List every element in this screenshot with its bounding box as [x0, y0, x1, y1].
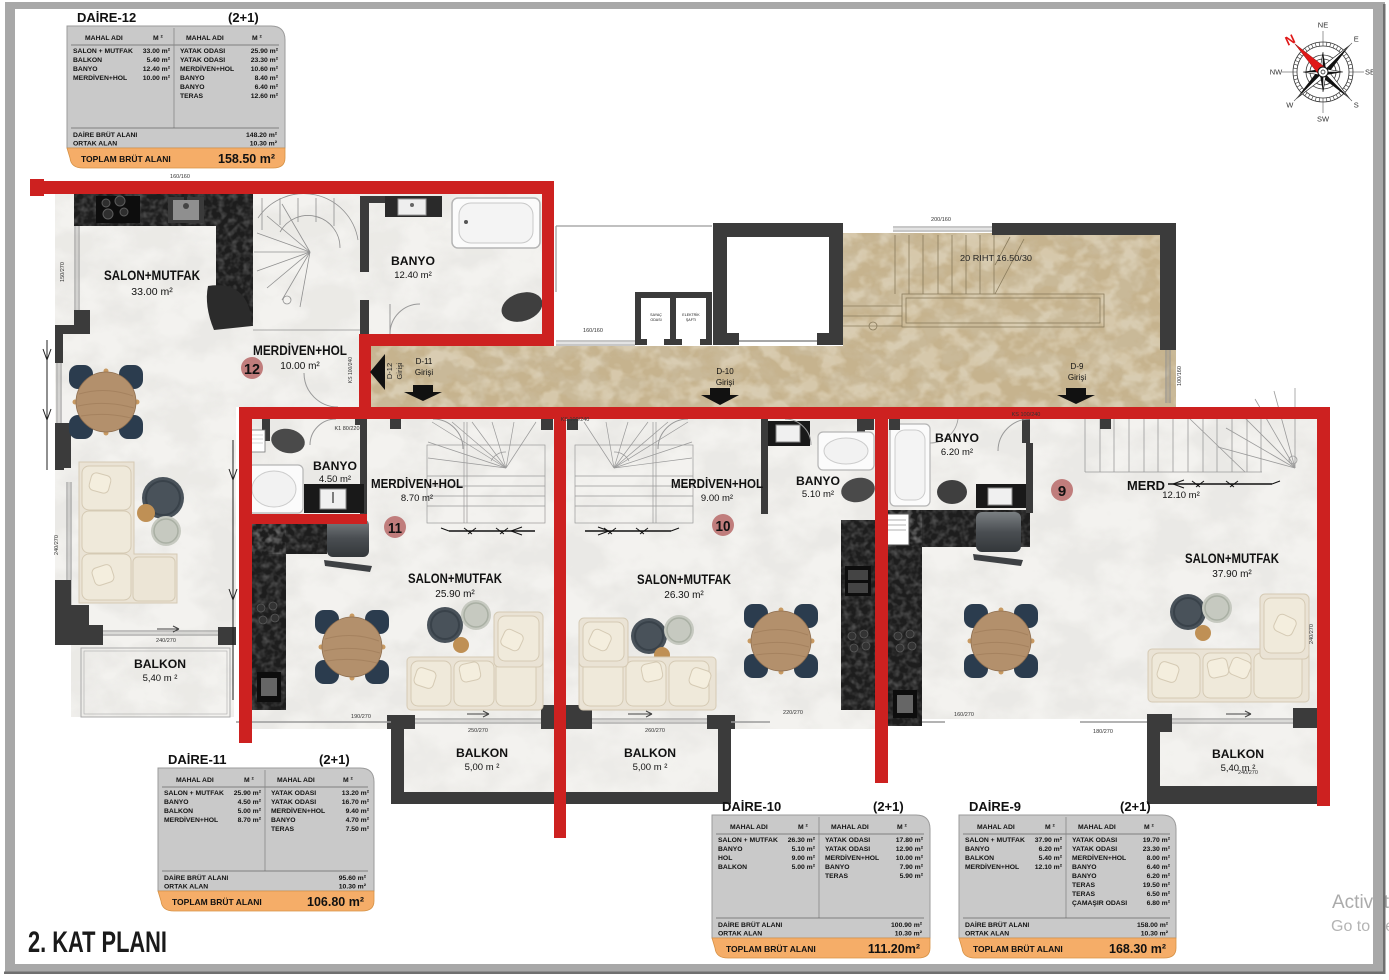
- svg-text:YATAK ODASI: YATAK ODASI: [1072, 837, 1117, 844]
- svg-text:33.00 m²: 33.00 m²: [131, 286, 173, 298]
- svg-text:250/270: 250/270: [468, 728, 488, 734]
- svg-text:8.70 m²: 8.70 m²: [238, 817, 262, 824]
- svg-text:MERDİVEN+HOL: MERDİVEN+HOL: [180, 65, 234, 73]
- svg-text:TERAS: TERAS: [1072, 891, 1096, 898]
- svg-text:S: S: [1354, 101, 1359, 110]
- svg-text:11: 11: [388, 520, 402, 537]
- svg-text:TOPLAM BRÜT ALANI: TOPLAM BRÜT ALANI: [81, 154, 171, 164]
- svg-text:12: 12: [244, 361, 260, 378]
- svg-text:(2+1): (2+1): [319, 752, 350, 767]
- svg-text:BALKON: BALKON: [624, 746, 676, 760]
- svg-text:DAİRE BRÜT ALANI: DAİRE BRÜT ALANI: [718, 920, 782, 929]
- svg-text:BALKON: BALKON: [164, 808, 193, 815]
- svg-text:BALKON: BALKON: [965, 855, 994, 862]
- svg-text:240/270: 240/270: [156, 638, 176, 644]
- svg-text:10.30 m²: 10.30 m²: [1141, 931, 1169, 938]
- svg-text:200/160: 200/160: [931, 217, 951, 223]
- svg-text:DAİRE BRÜT ALANI: DAİRE BRÜT ALANI: [164, 873, 228, 882]
- svg-text:BALKON: BALKON: [456, 746, 508, 760]
- svg-text:MAHAL ADI: MAHAL ADI: [977, 824, 1015, 831]
- svg-text:DAİRE-10: DAİRE-10: [722, 799, 781, 814]
- svg-text:BANYO: BANYO: [1072, 864, 1097, 871]
- svg-text:BANYO: BANYO: [271, 817, 296, 824]
- svg-text:Girişi: Girişi: [415, 368, 433, 377]
- svg-text:25.90 m²: 25.90 m²: [251, 48, 279, 55]
- svg-text:MERDİVEN+HOL: MERDİVEN+HOL: [164, 816, 218, 824]
- svg-text:M ²: M ²: [244, 777, 255, 784]
- svg-text:240/270: 240/270: [54, 535, 60, 555]
- svg-text:TERAS: TERAS: [271, 826, 295, 833]
- svg-text:ORTAK ALAN: ORTAK ALAN: [718, 931, 762, 938]
- svg-text:8.40 m²: 8.40 m²: [255, 75, 279, 82]
- svg-text:6.40 m²: 6.40 m²: [1147, 864, 1171, 871]
- svg-text:5.40 m²: 5.40 m²: [1039, 855, 1063, 862]
- svg-text:260/270: 260/270: [645, 728, 665, 734]
- svg-text:BALKON: BALKON: [134, 657, 186, 671]
- svg-text:MAHAL ADI: MAHAL ADI: [730, 824, 768, 831]
- svg-text:SALON + MUTFAK: SALON + MUTFAK: [718, 837, 778, 844]
- svg-text:SALON+MUTFAK: SALON+MUTFAK: [408, 571, 502, 586]
- svg-text:5.00 m²: 5.00 m²: [792, 864, 816, 871]
- svg-text:M ²: M ²: [798, 824, 809, 831]
- svg-text:M ²: M ²: [252, 35, 263, 42]
- svg-text:33.00 m²: 33.00 m²: [143, 48, 171, 55]
- svg-text:MAHAL ADI: MAHAL ADI: [176, 777, 214, 784]
- svg-text:158.00 m²: 158.00 m²: [1137, 922, 1169, 929]
- svg-text:4.50 m²: 4.50 m²: [238, 799, 262, 806]
- svg-text:MERDİVEN+HOL: MERDİVEN+HOL: [271, 807, 325, 815]
- svg-text:23.30 m²: 23.30 m²: [1143, 846, 1171, 853]
- svg-text:BANYO: BANYO: [825, 864, 850, 871]
- svg-text:19.70 m²: 19.70 m²: [1143, 837, 1171, 844]
- svg-text:10.60 m²: 10.60 m²: [251, 66, 279, 73]
- svg-text:YATAK ODASI: YATAK ODASI: [271, 790, 316, 797]
- svg-text:6.20 m²: 6.20 m²: [1147, 873, 1171, 880]
- svg-text:12.10 m²: 12.10 m²: [1162, 490, 1200, 501]
- svg-text:MERDİVEN+HOL: MERDİVEN+HOL: [965, 863, 1019, 871]
- svg-text:BANYO: BANYO: [391, 254, 435, 268]
- svg-text:150/270: 150/270: [60, 262, 66, 282]
- svg-text:ORTAK ALAN: ORTAK ALAN: [965, 931, 1009, 938]
- svg-text:10.00 m²: 10.00 m²: [896, 855, 924, 862]
- svg-text:DAİRE-9: DAİRE-9: [969, 799, 1021, 814]
- svg-text:Girişi: Girişi: [1068, 373, 1086, 382]
- svg-text:SALON + MUTFAK: SALON + MUTFAK: [965, 837, 1025, 844]
- svg-text:MERD: MERD: [1127, 478, 1165, 493]
- svg-text:MAHAL ADI: MAHAL ADI: [277, 777, 315, 784]
- svg-text:KS 100/240: KS 100/240: [561, 417, 590, 423]
- svg-text:10.30 m²: 10.30 m²: [250, 141, 278, 148]
- svg-text:ORTAK ALAN: ORTAK ALAN: [164, 884, 208, 891]
- svg-text:MAHAL ADI: MAHAL ADI: [1078, 824, 1116, 831]
- svg-text:6.50 m²: 6.50 m²: [1147, 891, 1171, 898]
- svg-text:MERDİVEN+HOL: MERDİVEN+HOL: [1072, 854, 1126, 862]
- svg-text:TOPLAM BRÜT ALANI: TOPLAM BRÜT ALANI: [726, 944, 816, 954]
- svg-text:12.90 m²: 12.90 m²: [896, 846, 924, 853]
- svg-text:(2+1): (2+1): [228, 10, 259, 25]
- svg-text:DAİRE-12: DAİRE-12: [77, 10, 136, 25]
- svg-text:ŞAFTI: ŞAFTI: [686, 318, 696, 322]
- svg-text:BANYO: BANYO: [965, 846, 990, 853]
- svg-text:7.90 m²: 7.90 m²: [900, 864, 924, 871]
- svg-text:5,00 m ²: 5,00 m ²: [633, 762, 668, 773]
- svg-text:N: N: [1283, 31, 1298, 49]
- svg-text:YATAK ODASI: YATAK ODASI: [825, 837, 870, 844]
- svg-text:BANYO: BANYO: [718, 846, 743, 853]
- svg-text:9: 9: [1058, 483, 1066, 500]
- svg-text:240/270: 240/270: [1238, 770, 1258, 776]
- svg-text:9.00 m²: 9.00 m²: [701, 493, 733, 504]
- svg-text:10.30 m²: 10.30 m²: [895, 931, 923, 938]
- svg-text:D-11: D-11: [416, 357, 433, 366]
- svg-text:106.80 m²: 106.80 m²: [307, 895, 364, 909]
- svg-text:SW: SW: [1317, 115, 1330, 124]
- svg-text:95.60 m²: 95.60 m²: [339, 875, 367, 882]
- svg-text:BANYO: BANYO: [73, 66, 98, 73]
- svg-text:37.90 m²: 37.90 m²: [1212, 569, 1252, 580]
- svg-text:TERAS: TERAS: [180, 93, 204, 100]
- svg-text:MERDİVEN+HOL: MERDİVEN+HOL: [825, 854, 879, 862]
- svg-text:148.20 m²: 148.20 m²: [246, 132, 278, 139]
- svg-text:BANYO: BANYO: [180, 84, 205, 91]
- svg-text:D-10: D-10: [716, 367, 734, 376]
- svg-text:13.20 m²: 13.20 m²: [342, 790, 370, 797]
- svg-text:240/270: 240/270: [1309, 624, 1315, 644]
- svg-text:M ²: M ²: [1045, 824, 1056, 831]
- svg-text:BALKON: BALKON: [73, 57, 102, 64]
- svg-text:KS 100/240: KS 100/240: [1012, 412, 1041, 418]
- svg-text:YATAK ODASI: YATAK ODASI: [180, 48, 225, 55]
- svg-text:7.50 m²: 7.50 m²: [346, 826, 370, 833]
- svg-text:12.40 m²: 12.40 m²: [394, 270, 432, 281]
- svg-text:ÇAMAŞIR ODASI: ÇAMAŞIR ODASI: [1072, 900, 1127, 907]
- svg-text:10.00 m²: 10.00 m²: [280, 361, 320, 372]
- svg-text:5,40 m ²: 5,40 m ²: [143, 673, 178, 684]
- svg-text:12.10 m²: 12.10 m²: [1035, 864, 1063, 871]
- svg-text:6.80 m²: 6.80 m²: [1147, 900, 1171, 907]
- svg-text:MAHAL ADI: MAHAL ADI: [186, 35, 224, 42]
- svg-text:5.10 m²: 5.10 m²: [792, 846, 816, 853]
- svg-text:SALON+MUTFAK: SALON+MUTFAK: [637, 572, 731, 587]
- svg-text:D-9: D-9: [1071, 362, 1084, 371]
- svg-text:4.70 m²: 4.70 m²: [346, 817, 370, 824]
- svg-text:6.20 m²: 6.20 m²: [1039, 846, 1063, 853]
- svg-text:168.30 m²: 168.30 m²: [1109, 942, 1166, 956]
- svg-text:Girişi: Girişi: [395, 362, 404, 379]
- svg-text:Girişi: Girişi: [716, 378, 734, 387]
- svg-text:6.20 m²: 6.20 m²: [941, 447, 973, 458]
- svg-text:8.70 m²: 8.70 m²: [401, 493, 433, 504]
- svg-text:220/270: 220/270: [783, 710, 803, 716]
- svg-text:16.70 m²: 16.70 m²: [342, 799, 370, 806]
- svg-text:(2+1): (2+1): [1120, 799, 1151, 814]
- svg-text:DAİRE-11: DAİRE-11: [168, 752, 227, 767]
- svg-text:YATAK ODASI: YATAK ODASI: [180, 57, 225, 64]
- svg-text:5.00 m²: 5.00 m²: [238, 808, 262, 815]
- svg-text:ELEKTRİK: ELEKTRİK: [682, 312, 700, 317]
- svg-text:DAİRE BRÜT ALANI: DAİRE BRÜT ALANI: [73, 130, 137, 139]
- svg-text:BANYO: BANYO: [164, 799, 189, 806]
- svg-text:20 RIHT 16.50/30: 20 RIHT 16.50/30: [960, 254, 1033, 263]
- svg-text:M ²: M ²: [343, 777, 354, 784]
- svg-text:MERDİVEN+HOL: MERDİVEN+HOL: [371, 476, 463, 491]
- svg-text:YATAK ODASI: YATAK ODASI: [825, 846, 870, 853]
- svg-text:NE: NE: [1318, 21, 1328, 30]
- svg-text:YATAK ODASI: YATAK ODASI: [271, 799, 316, 806]
- svg-text:8.00 m²: 8.00 m²: [1147, 855, 1171, 862]
- svg-text:BANYO: BANYO: [935, 431, 979, 445]
- svg-text:26.30 m²: 26.30 m²: [788, 837, 816, 844]
- svg-text:W: W: [1286, 101, 1294, 110]
- svg-text:160/270: 160/270: [954, 712, 974, 718]
- svg-text:SALON + MUTFAK: SALON + MUTFAK: [164, 790, 224, 797]
- svg-text:19.50 m²: 19.50 m²: [1143, 882, 1171, 889]
- svg-text:M ²: M ²: [153, 35, 164, 42]
- svg-text:9.00 m²: 9.00 m²: [792, 855, 816, 862]
- svg-text:TERAS: TERAS: [1072, 882, 1096, 889]
- svg-text:160/160: 160/160: [583, 328, 603, 334]
- svg-text:ORTAK ALAN: ORTAK ALAN: [73, 141, 117, 148]
- svg-text:MAHAL ADI: MAHAL ADI: [85, 35, 123, 42]
- svg-text:BANYO: BANYO: [313, 459, 357, 473]
- svg-text:YATAK ODASI: YATAK ODASI: [1072, 846, 1117, 853]
- svg-text:D-12: D-12: [385, 363, 394, 379]
- svg-text:180/270: 180/270: [1093, 729, 1113, 735]
- svg-text:190/270: 190/270: [351, 714, 371, 720]
- svg-text:111.20m²: 111.20m²: [868, 942, 920, 956]
- svg-text:SALON + MUTFAK: SALON + MUTFAK: [73, 48, 133, 55]
- svg-text:BANYO: BANYO: [180, 75, 205, 82]
- svg-text:23.30 m²: 23.30 m²: [251, 57, 279, 64]
- svg-text:160/160: 160/160: [170, 174, 190, 180]
- svg-text:K1 80/220: K1 80/220: [334, 426, 359, 432]
- svg-text:E: E: [1354, 34, 1359, 43]
- svg-text:MERDİVEN+HOL: MERDİVEN+HOL: [671, 476, 763, 491]
- svg-text:17.80 m²: 17.80 m²: [896, 837, 924, 844]
- svg-text:10.30 m²: 10.30 m²: [339, 884, 367, 891]
- svg-text:100.90 m²: 100.90 m²: [891, 922, 923, 929]
- svg-text:10: 10: [716, 518, 731, 535]
- svg-text:4.50 m²: 4.50 m²: [319, 474, 351, 485]
- svg-text:TOPLAM BRÜT ALANI: TOPLAM BRÜT ALANI: [172, 897, 262, 907]
- svg-text:M ²: M ²: [897, 824, 908, 831]
- svg-text:2. KAT PLANI: 2. KAT PLANI: [28, 926, 167, 959]
- svg-text:HOL: HOL: [718, 855, 732, 862]
- svg-text:BALKON: BALKON: [718, 864, 747, 871]
- svg-text:6.40 m²: 6.40 m²: [255, 84, 279, 91]
- svg-text:TERAS: TERAS: [825, 873, 849, 880]
- svg-text:5.10 m²: 5.10 m²: [802, 489, 834, 500]
- svg-text:BALKON: BALKON: [1212, 747, 1264, 761]
- svg-text:NW: NW: [1270, 68, 1283, 77]
- svg-text:DAİRE BRÜT ALANI: DAİRE BRÜT ALANI: [965, 920, 1029, 929]
- svg-text:MERDİVEN+HOL: MERDİVEN+HOL: [73, 74, 127, 82]
- svg-text:37.90 m²: 37.90 m²: [1035, 837, 1063, 844]
- svg-text:158.50 m²: 158.50 m²: [218, 152, 275, 166]
- svg-text:26.30 m²: 26.30 m²: [664, 590, 704, 601]
- svg-text:12.60 m²: 12.60 m²: [251, 93, 279, 100]
- svg-text:(2+1): (2+1): [873, 799, 904, 814]
- svg-text:12.40 m²: 12.40 m²: [143, 66, 171, 73]
- svg-text:5.40 m²: 5.40 m²: [147, 57, 171, 64]
- svg-text:TOPLAM BRÜT ALANI: TOPLAM BRÜT ALANI: [973, 944, 1063, 954]
- svg-text:10.00 m²: 10.00 m²: [143, 75, 171, 82]
- svg-text:MERDİVEN+HOL: MERDİVEN+HOL: [253, 343, 347, 358]
- svg-text:25.90 m²: 25.90 m²: [234, 790, 262, 797]
- svg-text:5,00 m ²: 5,00 m ²: [465, 762, 500, 773]
- svg-text:MAHAL ADI: MAHAL ADI: [831, 824, 869, 831]
- svg-text:M ²: M ²: [1144, 824, 1155, 831]
- svg-text:SALON+MUTFAK: SALON+MUTFAK: [104, 267, 200, 283]
- svg-text:9.40 m²: 9.40 m²: [346, 808, 370, 815]
- svg-text:5.90 m²: 5.90 m²: [900, 873, 924, 880]
- svg-text:ODASI: ODASI: [650, 318, 661, 322]
- svg-text:SAYAÇ: SAYAÇ: [650, 313, 662, 317]
- svg-text:SALON+MUTFAK: SALON+MUTFAK: [1185, 551, 1279, 566]
- svg-text:25.90 m²: 25.90 m²: [435, 589, 475, 600]
- svg-text:BANYO: BANYO: [796, 474, 840, 488]
- svg-text:BANYO: BANYO: [1072, 873, 1097, 880]
- svg-text:100/160: 100/160: [1177, 366, 1183, 386]
- svg-text:KS 100/240: KS 100/240: [348, 357, 354, 383]
